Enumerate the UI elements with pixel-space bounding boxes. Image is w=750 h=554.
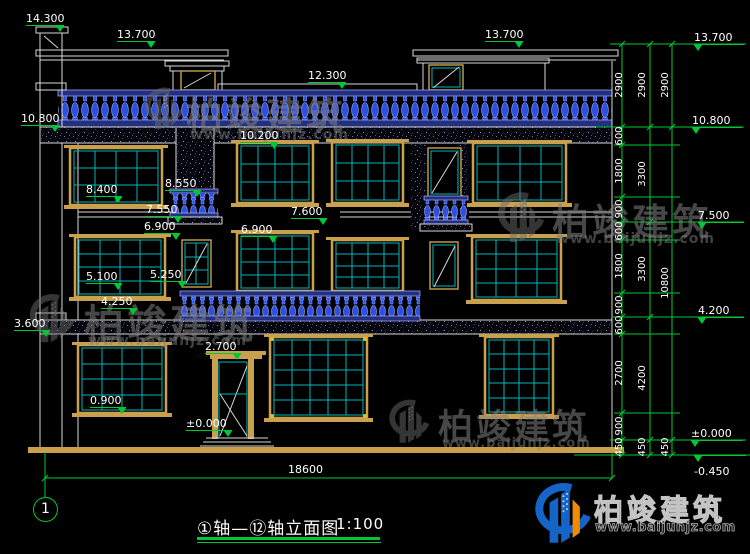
drawing-title: ①轴—⑫轴立面图 xyxy=(197,514,339,539)
window xyxy=(326,139,409,207)
dim-label: 2700 xyxy=(614,353,626,393)
elevation-marker: 0.900 xyxy=(90,394,126,407)
dim-label: 10800 xyxy=(660,263,672,303)
elevation-value: 4.250 xyxy=(101,295,137,308)
elevation-value: -0.450 xyxy=(694,465,746,478)
brand-url-text: www.baijunjz.com xyxy=(595,520,736,535)
elevation-value: 5.100 xyxy=(86,270,122,283)
elevation-value: 3.600 xyxy=(14,317,50,330)
elevation-value: 7.600 xyxy=(291,205,327,218)
dim-label: 450 xyxy=(660,427,672,467)
dim-label: 600 xyxy=(614,116,626,156)
dim-label: 1800 xyxy=(614,246,626,286)
elevation-value: 10.800 xyxy=(21,112,59,125)
elevation-marker: 13.700 xyxy=(694,31,744,44)
stairwell-window xyxy=(182,240,211,287)
dim-label: 600 xyxy=(614,211,626,251)
window xyxy=(326,237,409,295)
dim-label: 600 xyxy=(614,305,626,345)
dim-label: 3300 xyxy=(637,154,649,194)
drawing-scale: 1:100 xyxy=(336,515,384,533)
top-floor-windows xyxy=(64,139,572,209)
dim-label: 2900 xyxy=(614,65,626,105)
title-underline xyxy=(197,537,380,540)
total-width-dim: 18600 xyxy=(288,463,323,476)
stairwell-door xyxy=(430,242,458,289)
entry-door xyxy=(200,351,274,446)
dim-label: 1800 xyxy=(614,151,626,191)
elevation-marker: 10.800 xyxy=(21,112,59,125)
dim-label: 450 xyxy=(637,427,649,467)
elevation-value: 6.900 xyxy=(241,223,277,236)
elevation-value: 6.900 xyxy=(144,220,180,233)
elevation-value: 8.550 xyxy=(165,177,201,190)
elevation-marker: 13.700 xyxy=(485,28,523,41)
axis-bubble: 1 xyxy=(33,497,58,522)
elevation-marker: 12.300 xyxy=(308,69,346,82)
dim-label: 450 xyxy=(614,427,626,467)
elevation-marker: ±0.000 xyxy=(691,427,743,440)
window xyxy=(264,334,373,422)
brand-logo xyxy=(539,487,587,543)
elevation-marker: 5.250 xyxy=(150,268,186,281)
watermark-url-text: www.baijunjz.com xyxy=(556,231,715,247)
elevation-value: 5.250 xyxy=(150,268,186,281)
elevation-value: 7.500 xyxy=(698,209,744,222)
elevation-marker: 6.900 xyxy=(241,223,277,236)
elevation-value: 0.900 xyxy=(90,394,126,407)
elevation-marker: 13.700 xyxy=(117,28,155,41)
elevation-marker: 10.200 xyxy=(240,129,278,142)
dim-label: 4200 xyxy=(637,358,649,398)
watermark-url-text: www.baijunjz.com xyxy=(442,436,591,451)
dim-label: 3300 xyxy=(637,249,649,289)
elevation-marker: 5.100 xyxy=(86,270,122,283)
elevation-value: 13.700 xyxy=(485,28,523,41)
elevation-value: ±0.000 xyxy=(186,417,232,430)
elevation-value: 14.300 xyxy=(26,12,64,25)
elevation-value: 13.700 xyxy=(117,28,155,41)
elevation-marker: 4.200 xyxy=(698,304,744,317)
elevation-value: 4.200 xyxy=(698,304,744,317)
elevation-value: 8.400 xyxy=(86,183,122,196)
elevation-marker: 7.500 xyxy=(698,209,744,222)
elevation-value: 10.200 xyxy=(240,129,278,142)
elevation-marker: 2.700 xyxy=(205,340,241,353)
elevation-marker: 7.600 xyxy=(291,205,327,218)
balconette-right xyxy=(420,196,472,231)
elevation-value: 7.550 xyxy=(146,203,182,216)
elevation-marker: 3.600 xyxy=(14,317,50,330)
stairwell-window xyxy=(428,148,461,197)
elevation-value: 12.300 xyxy=(308,69,346,82)
elevation-marker: -0.450 xyxy=(694,455,746,468)
elevation-value: ±0.000 xyxy=(691,427,743,440)
elevation-value: 10.800 xyxy=(692,114,742,127)
elevation-marker: 7.550 xyxy=(146,203,182,216)
dimension-chain-bottom xyxy=(42,452,615,497)
elevation-value: 13.700 xyxy=(694,31,744,44)
elevation-marker: 10.800 xyxy=(692,114,742,127)
elevation-marker: 6.900 xyxy=(144,220,180,233)
elevation-marker: 14.300 xyxy=(26,12,64,25)
elevation-marker: 4.250 xyxy=(101,295,137,308)
elevation-value: 2.700 xyxy=(205,340,241,353)
title-underline xyxy=(197,542,381,543)
elevation-marker: 8.550 xyxy=(165,177,201,190)
cad-elevation-drawing: 柏竣建筑 www.baijunjz.com 柏竣建筑 www.baijunjz.… xyxy=(0,0,750,554)
elevation-marker: 8.400 xyxy=(86,183,122,196)
elevation-marker: ±0.000 xyxy=(186,417,232,430)
dim-label: 2900 xyxy=(660,65,672,105)
dim-label: 2900 xyxy=(637,65,649,105)
